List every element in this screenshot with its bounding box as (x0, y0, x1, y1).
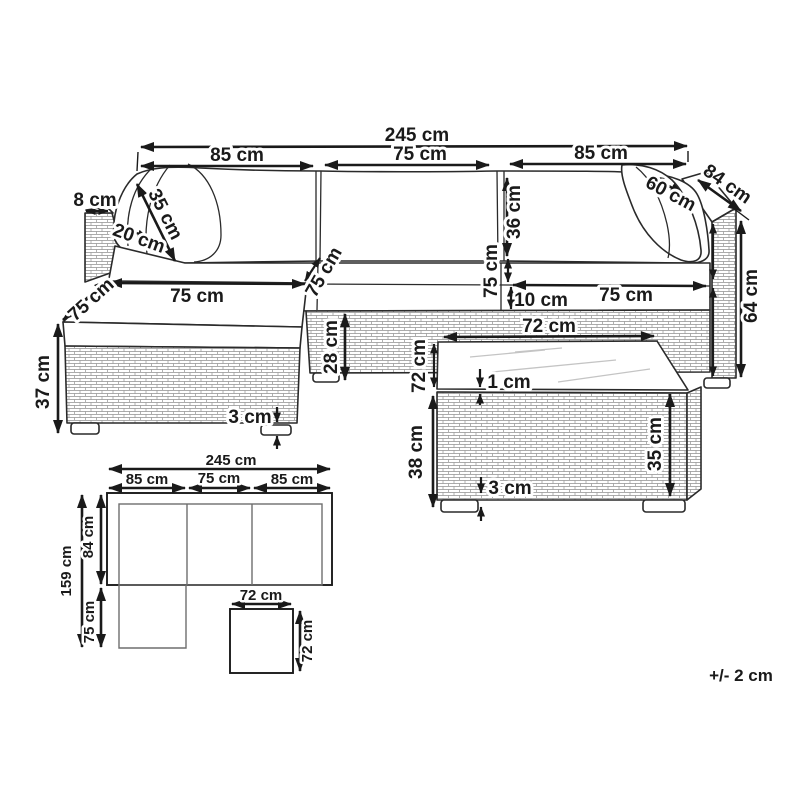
dim-foot-height-label: 3 cm (228, 407, 271, 428)
plan-overall-width-label: 245 cm (206, 452, 257, 469)
table-body-height-label: 35 cm (645, 417, 666, 471)
plan-overall-depth-label: 159 cm (58, 546, 75, 597)
furniture-dimension-diagram: 245 cm 85 cm 75 cm 85 cm 8 cm 35 cm 20 c… (0, 0, 800, 800)
plan-sofa-outline (107, 493, 332, 585)
plan-sofa-depth-label: 84 cm (80, 516, 97, 559)
table-foot-right (643, 500, 685, 512)
backrest-band (114, 167, 709, 263)
plan-table-outline (230, 609, 293, 673)
plan-middle-width-label: 75 cm (198, 470, 241, 487)
table-top-side-depth-label: 72 cm (409, 339, 430, 393)
dim-overall-width-label: 245 cm (385, 125, 449, 146)
plan-view: 245 cm 85 cm 75 cm 85 cm 159 cm 84 cm 75… (58, 452, 332, 673)
table-top-width-label: 72 cm (522, 316, 576, 337)
dim-middle-width-label: 75 cm (393, 144, 447, 165)
table-glass-thickness-label: 1 cm (487, 372, 530, 393)
dim-chaise-width-label: 75 cm (170, 286, 224, 307)
dim-right-width-label: 85 cm (574, 143, 628, 164)
plan-chaise-outline (119, 585, 186, 648)
dim-arm-top-width-label: 8 cm (73, 190, 116, 211)
tolerance-note: +/- 2 cm (709, 666, 773, 685)
plan-chaise-extension-label: 75 cm (81, 601, 98, 644)
dim-backrest-height-label: 36 cm (504, 185, 525, 239)
dim-chaise-width-arrow (109, 283, 305, 284)
dim-right-seat-width-label: 75 cm (599, 285, 653, 306)
dim-chaise-height-label: 37 cm (33, 355, 54, 409)
right-armrest-front-face (712, 208, 736, 378)
table-body-side (687, 387, 701, 500)
right-armrest-foot (704, 378, 730, 388)
chaise-cushion-front (63, 322, 302, 348)
dim-base-height-label: 28 cm (321, 320, 342, 374)
plan-table-depth-label: 72 cm (299, 620, 316, 663)
plan-table-width-label: 72 cm (240, 587, 283, 604)
chaise-foot-left (71, 423, 99, 434)
table-total-height-label: 38 cm (406, 425, 427, 479)
dim-right-seat-depth-label: 75 cm (481, 244, 502, 298)
table-foot-left (441, 500, 478, 512)
plan-left-width-label: 85 cm (126, 471, 169, 488)
plan-section-dividers (187, 504, 252, 585)
table-foot-height-label: 3 cm (488, 478, 531, 499)
plan-right-width-label: 85 cm (271, 471, 314, 488)
plan-cushion-area (119, 504, 322, 585)
dim-left-width-label: 85 cm (210, 145, 264, 166)
dim-arm-height-label: 64 cm (741, 269, 762, 323)
dim-seat-cushion-thickness-label: 10 cm (514, 290, 568, 311)
